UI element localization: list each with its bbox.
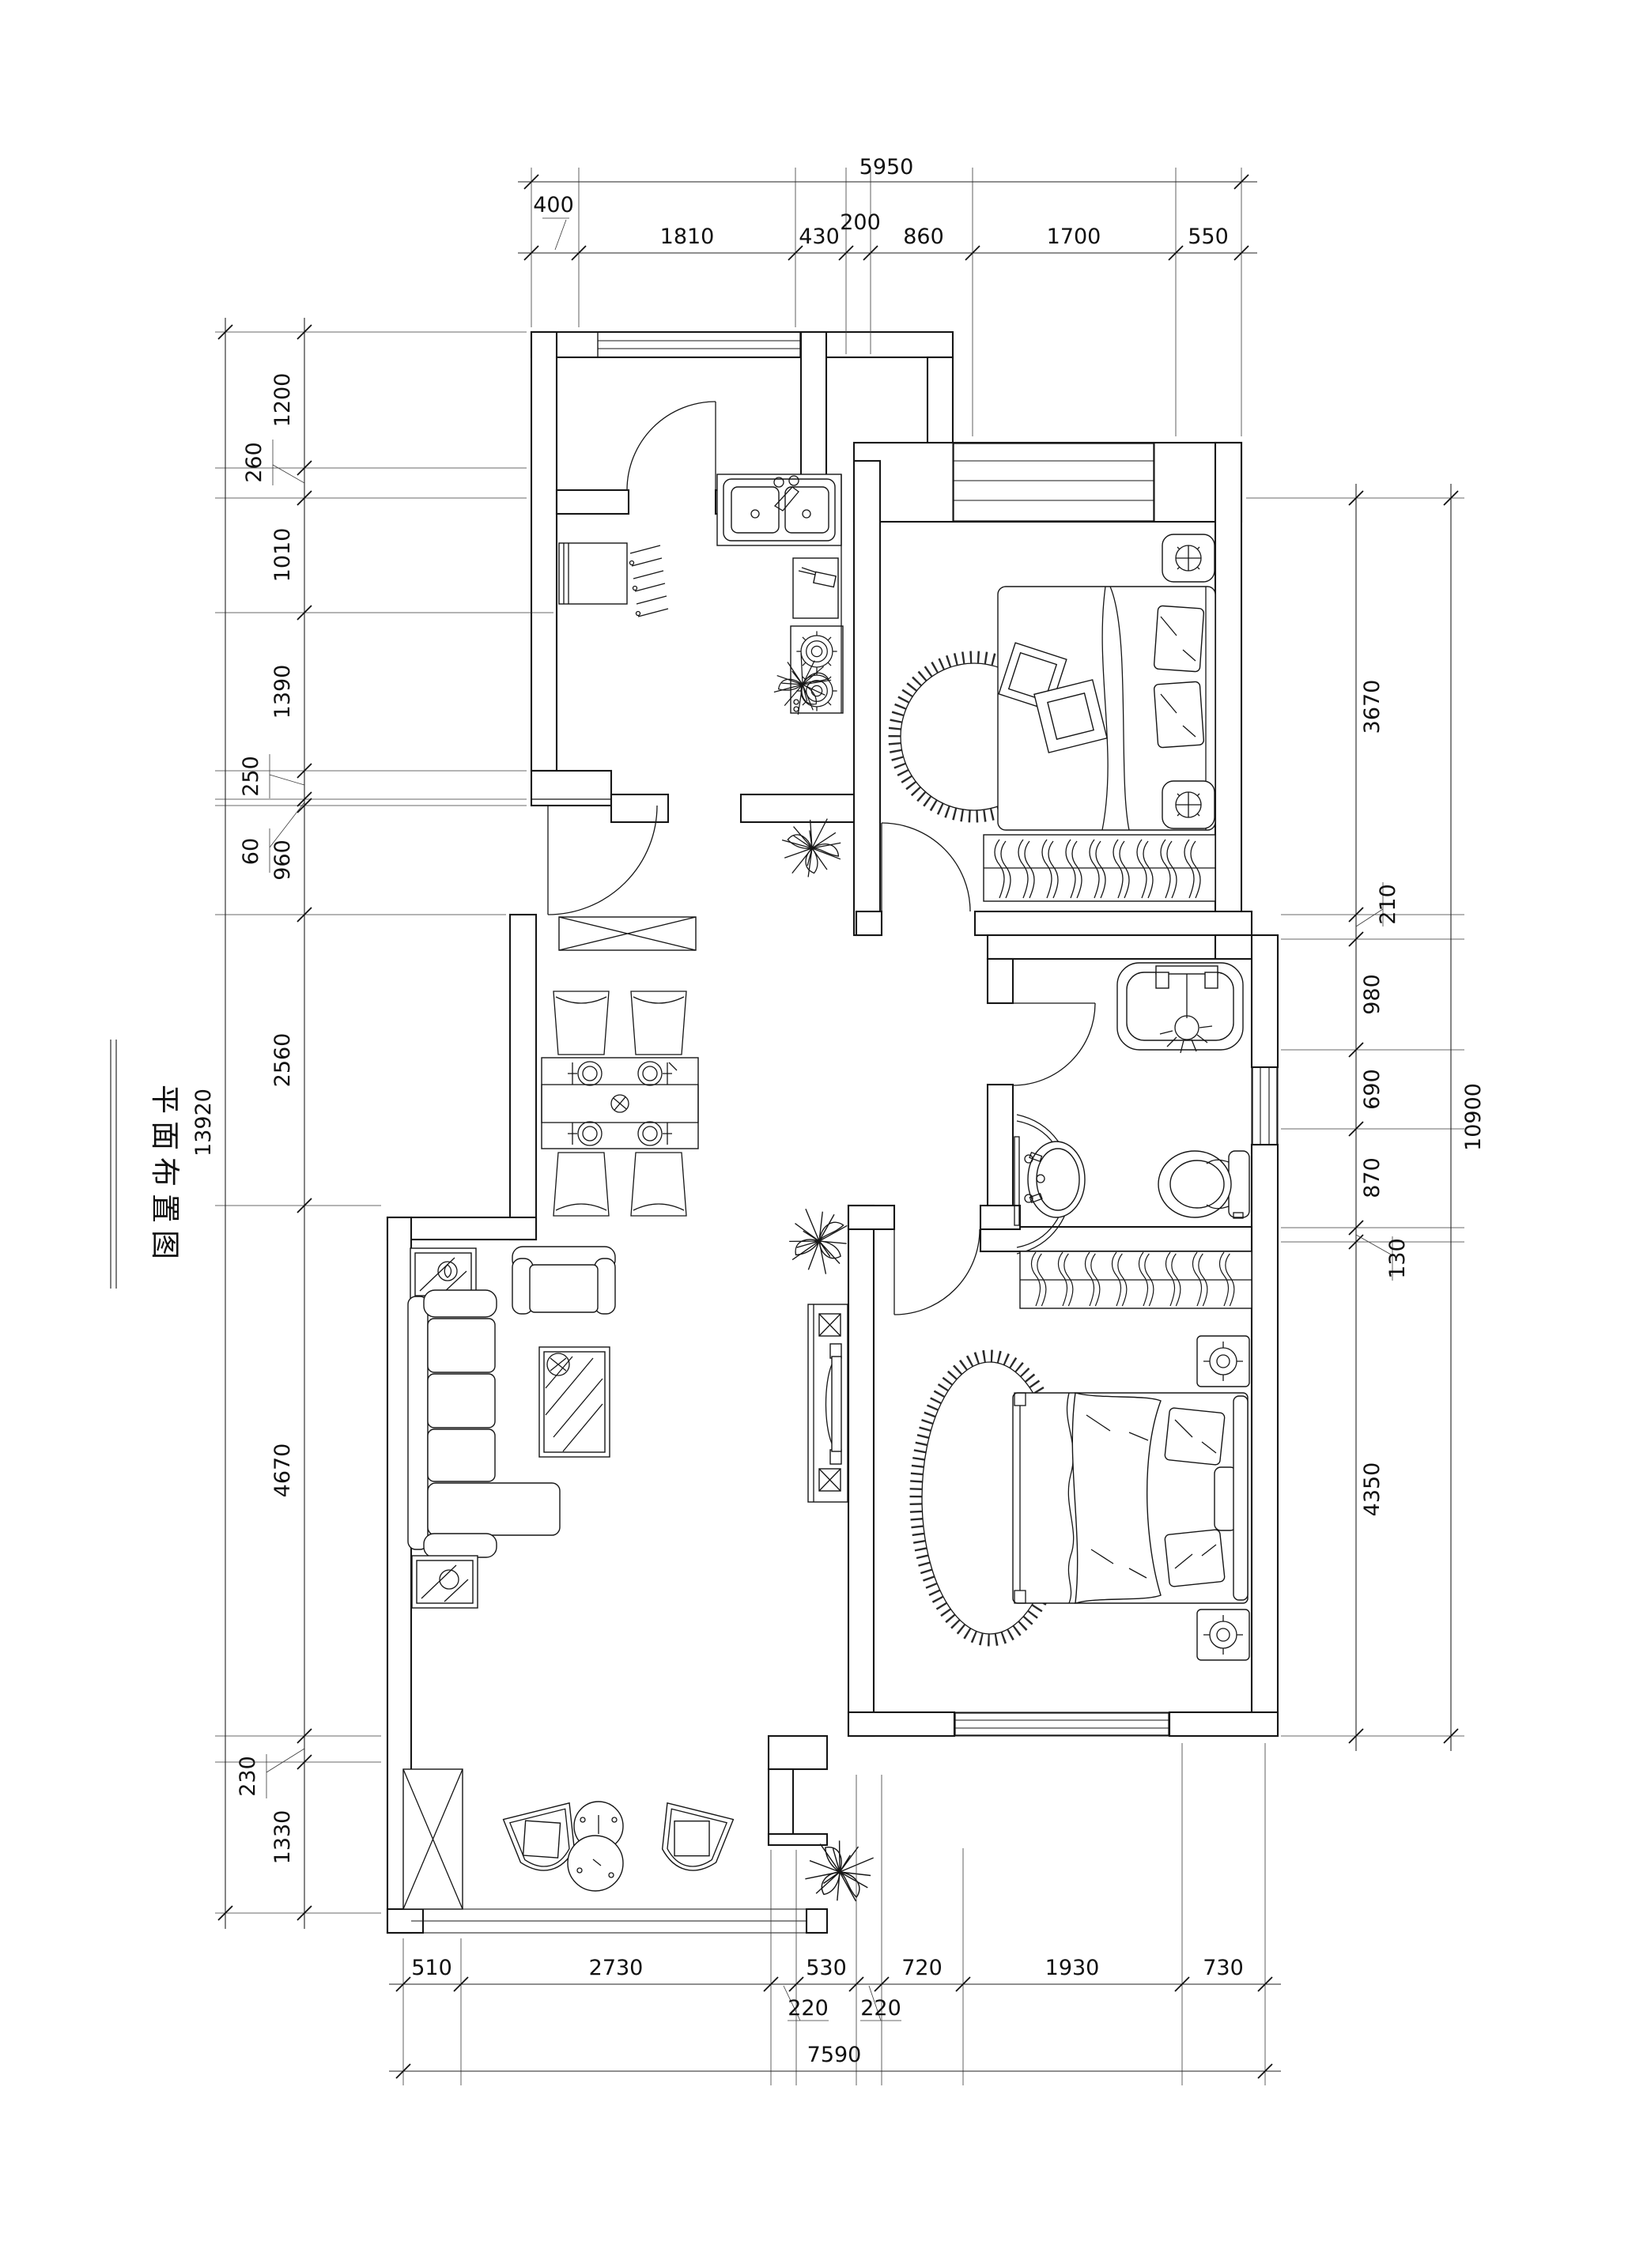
dim-seg: 960 — [270, 840, 295, 881]
refrigerator — [559, 543, 627, 604]
toilet — [1158, 1151, 1249, 1218]
dim-seg: 430 — [799, 225, 840, 249]
dining-chair — [631, 1153, 686, 1216]
dimension-chain-top: 5950 400 1810 430 200 860 1700 550 — [518, 155, 1257, 260]
armchair — [512, 1247, 615, 1314]
dining-chair — [631, 991, 686, 1055]
dim-total-bottom: 7590 — [807, 2043, 862, 2067]
bedroom2 — [1013, 1251, 1252, 1660]
dim-seg: 980 — [1360, 974, 1385, 1015]
dim-seg: 510 — [411, 1956, 452, 1980]
balcony-window — [411, 1909, 807, 1933]
floor-plan-drawing: 5950 400 1810 430 200 860 1700 550 510 2… — [0, 0, 1632, 2268]
dim-seg: 1330 — [270, 1810, 295, 1865]
drying-rack — [630, 545, 669, 617]
sofa — [408, 1290, 560, 1557]
page-title: 平面布置图 — [148, 1085, 182, 1266]
wardrobe — [984, 835, 1215, 901]
dim-seg: 1930 — [1045, 1956, 1100, 1980]
dim-offset: 210 — [1376, 884, 1400, 925]
dim-seg: 1700 — [1047, 225, 1101, 249]
dimension-chain-bottom: 510 2730 530 720 1930 730 220 220 7590 — [389, 1956, 1281, 2078]
dimension-chain-right: 3670 980 690 870 4350 210 130 10900 — [1349, 484, 1486, 1751]
nightstand — [1197, 1336, 1249, 1387]
bedroom1 — [984, 534, 1215, 901]
dim-seg: 4350 — [1360, 1462, 1385, 1517]
dim-offset: 220 — [860, 1996, 901, 2021]
bedroom2-window — [954, 1712, 1169, 1736]
dim-offset: 130 — [1385, 1238, 1410, 1279]
dim-seg: 1390 — [270, 665, 295, 719]
bathroom — [1014, 963, 1249, 1254]
dim-seg: 2730 — [589, 1956, 644, 1980]
wardrobe — [1020, 1251, 1252, 1308]
dim-total-right: 10900 — [1461, 1083, 1486, 1151]
balcony-table — [568, 1802, 623, 1891]
dim-seg: 400 — [533, 193, 574, 217]
dim-offset: 230 — [236, 1756, 260, 1797]
dim-seg: 1810 — [660, 225, 715, 249]
bedroom2-door — [894, 1229, 980, 1315]
bathroom-window — [1252, 1067, 1278, 1145]
tv-cabinet — [808, 1304, 848, 1502]
sink-counter — [717, 474, 841, 545]
dim-seg: 1010 — [270, 528, 295, 583]
coffee-table — [539, 1347, 610, 1457]
dim-seg: 690 — [1360, 1069, 1385, 1110]
dim-total-top: 5950 — [859, 155, 914, 179]
dim-offset: 220 — [788, 1996, 829, 2021]
utility-room-door — [627, 402, 716, 490]
dim-seg: 720 — [901, 1956, 943, 1980]
balcony-chair — [653, 1803, 734, 1878]
living-room — [408, 1247, 848, 1608]
gas-stove — [791, 626, 843, 713]
dim-seg: 200 — [840, 210, 881, 235]
dim-seg: 870 — [1360, 1157, 1385, 1198]
side-table — [412, 1556, 478, 1608]
floor-plan-sheet: 5950 400 1810 430 200 860 1700 550 510 2… — [0, 0, 1632, 2268]
dim-seg: 4670 — [270, 1443, 295, 1498]
bathroom-door — [1013, 1003, 1095, 1085]
dim-offset: 250 — [239, 756, 263, 797]
dim-seg: 2560 — [270, 1033, 295, 1088]
dimension-chain-left: 1200 1010 1390 960 2560 4670 1330 260 25… — [191, 318, 312, 1929]
bedroom1-door — [882, 823, 970, 911]
dim-seg: 860 — [903, 225, 944, 249]
nightstand — [1197, 1609, 1249, 1660]
bed — [1013, 1393, 1248, 1603]
dim-seg: 550 — [1188, 225, 1229, 249]
dim-seg: 3670 — [1360, 680, 1385, 734]
nightstand — [1162, 534, 1215, 582]
dim-seg: 530 — [806, 1956, 847, 1980]
dining-chair — [553, 1153, 609, 1216]
dim-offset: 260 — [242, 442, 266, 483]
shoe-cabinet — [559, 917, 696, 950]
balcony — [403, 1769, 733, 1909]
dining-table — [542, 1058, 698, 1149]
dining-chair — [553, 991, 609, 1055]
cutting-board — [793, 558, 838, 618]
dim-offset: 60 — [239, 838, 263, 865]
dim-seg: 730 — [1203, 1956, 1244, 1980]
shower — [1117, 963, 1243, 1053]
dim-seg: 1200 — [270, 373, 295, 428]
dining-area — [542, 917, 698, 1216]
dim-total-left: 13920 — [191, 1089, 216, 1157]
nightstand — [1162, 781, 1215, 828]
structural-column — [403, 1769, 463, 1909]
title-block: 平面布置图 — [111, 1040, 182, 1289]
